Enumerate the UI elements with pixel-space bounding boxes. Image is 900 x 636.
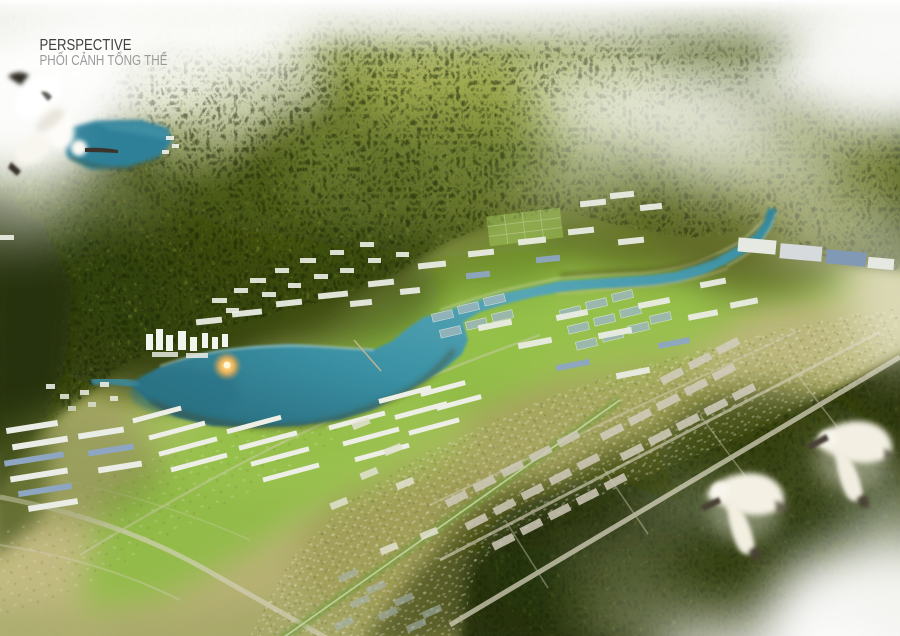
svg-text:PERSPECTIVE: PERSPECTIVE [40,37,132,54]
svg-text:PHỐI CẢNH TỔNG THỂ: PHỐI CẢNH TỔNG THỂ [40,51,168,69]
